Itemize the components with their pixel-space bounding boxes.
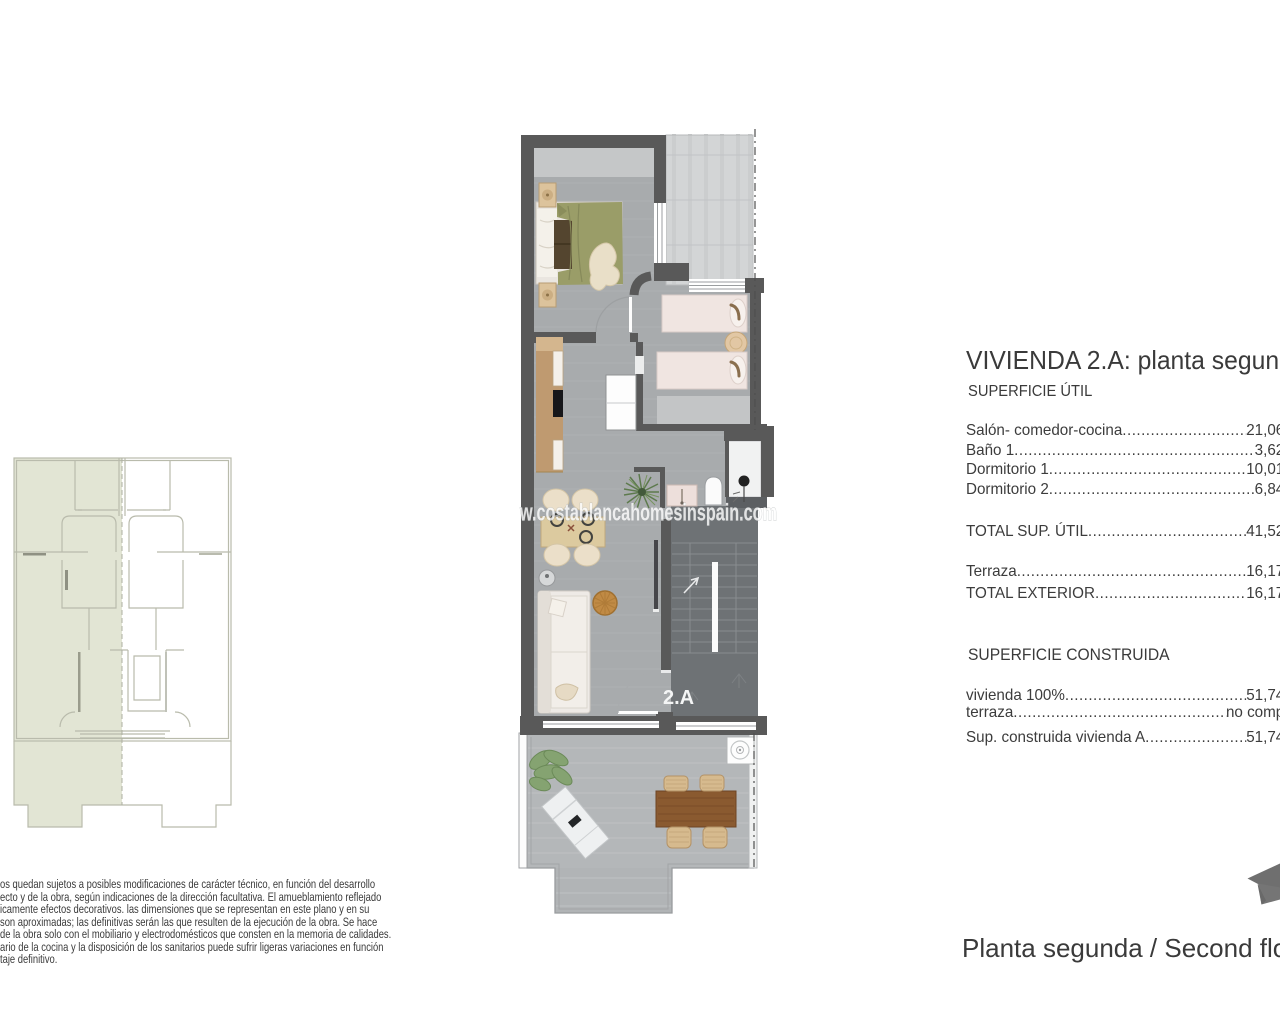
- svg-text:2.A: 2.A: [663, 687, 694, 709]
- svg-text:w.costablancahomesinspain.com: w.costablancahomesinspain.com: [519, 500, 777, 527]
